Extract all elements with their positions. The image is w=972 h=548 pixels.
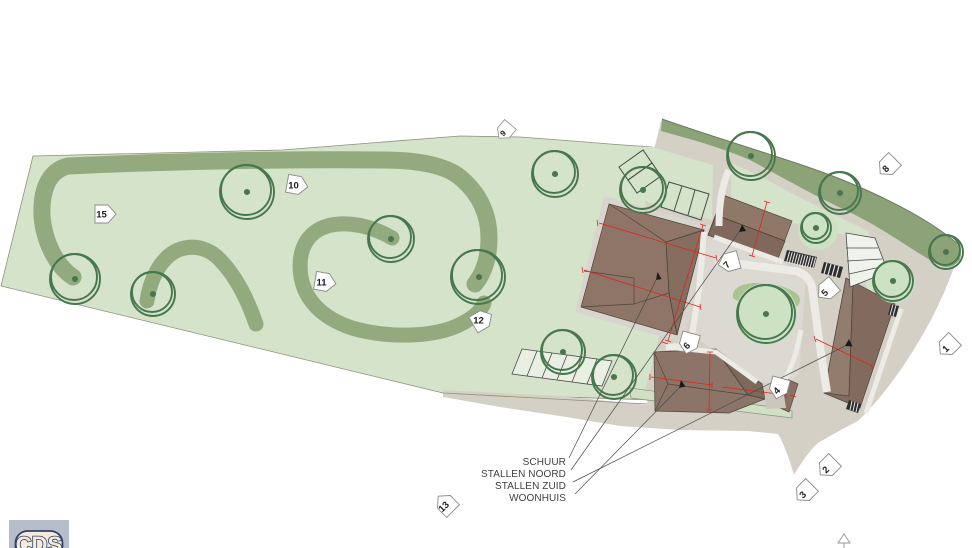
svg-text:15: 15 (96, 210, 107, 221)
svg-text:CDS: CDS (16, 532, 62, 548)
svg-text:12: 12 (473, 316, 484, 327)
svg-text:11: 11 (316, 278, 327, 289)
svg-text:10: 10 (288, 181, 299, 192)
svg-text:SCHUUR: SCHUUR (523, 457, 566, 468)
svg-text:STALLEN ZUID: STALLEN ZUID (495, 481, 566, 492)
svg-text:WOONHUIS: WOONHUIS (509, 493, 566, 504)
svg-text:STALLEN NOORD: STALLEN NOORD (481, 469, 566, 480)
